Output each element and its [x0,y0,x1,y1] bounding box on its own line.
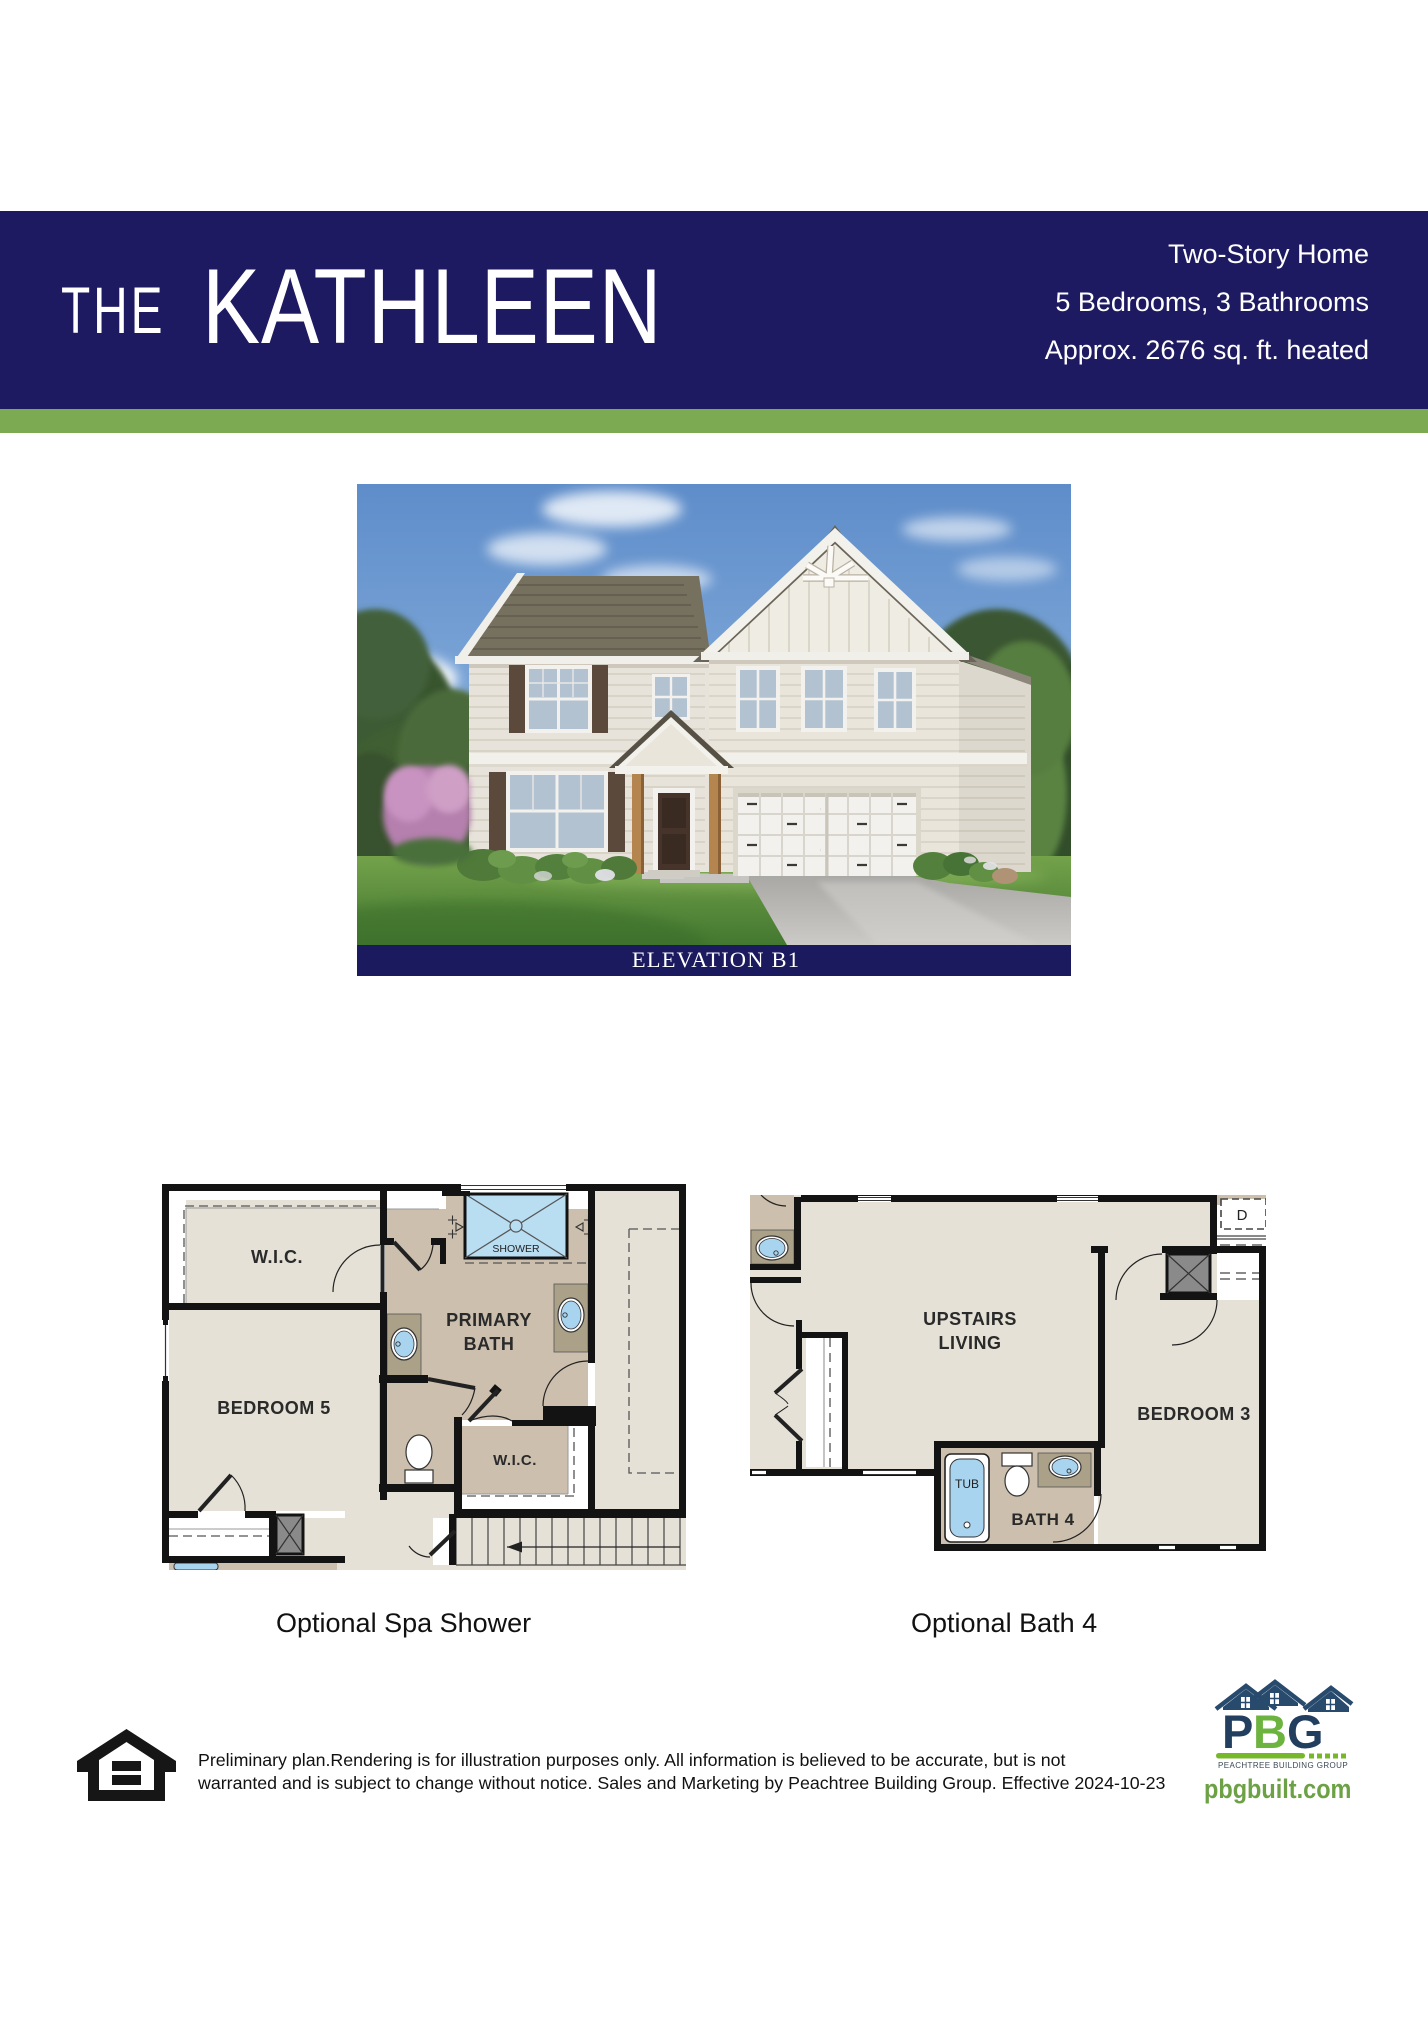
svg-text:W.I.C.: W.I.C. [251,1247,303,1267]
svg-text:PRIMARY: PRIMARY [446,1310,532,1330]
svg-text:G: G [1287,1705,1323,1758]
svg-text:LIVING: LIVING [938,1333,1001,1353]
svg-text:ELEVATION B1: ELEVATION B1 [632,947,800,972]
svg-text:D: D [1237,1207,1248,1224]
svg-text:SHOWER: SHOWER [492,1243,540,1255]
svg-text:W.I.C.: W.I.C. [493,1452,537,1469]
svg-text:BEDROOM 5: BEDROOM 5 [217,1398,331,1418]
svg-text:BEDROOM 3: BEDROOM 3 [1137,1404,1251,1424]
svg-text:UPSTAIRS: UPSTAIRS [923,1309,1017,1329]
svg-text:TUB: TUB [955,1477,979,1491]
svg-text:BATH 4: BATH 4 [1011,1510,1074,1529]
svg-text:BATH: BATH [464,1334,515,1354]
